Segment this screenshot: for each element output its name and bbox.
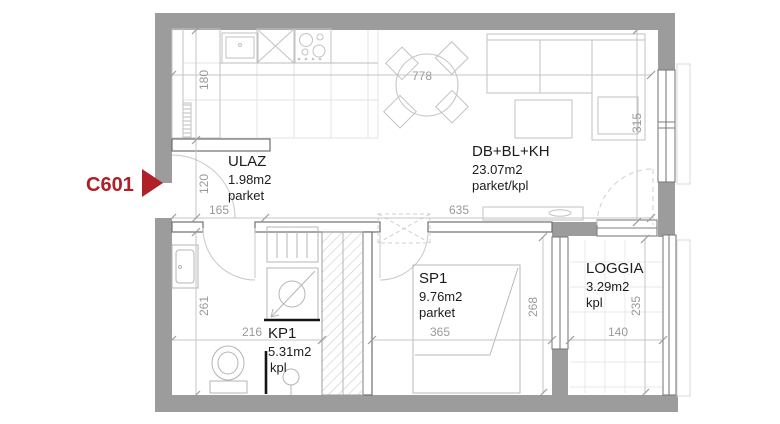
living-dining	[384, 34, 653, 225]
unit-marker[interactable]: C601	[86, 169, 163, 197]
room-bedroom-floor: parket	[419, 305, 456, 320]
unit-code-label[interactable]: C601	[86, 174, 134, 196]
corner-cabinet	[257, 29, 294, 63]
wall-loggia-left-lower	[552, 349, 568, 395]
dim-entry-depth: 120	[197, 174, 211, 194]
partition-living-bedroom	[428, 222, 552, 232]
room-loggia-name: LOGGIA	[586, 260, 644, 277]
dim-loggia-width: 140	[608, 325, 628, 339]
room-loggia-area: 3.29m2	[586, 279, 629, 294]
dim-living-total-width: 778	[412, 69, 432, 83]
kitchen-sink	[222, 33, 258, 63]
kitchen-stub-wall	[172, 139, 270, 151]
room-bath-floor: kpl	[270, 360, 287, 375]
wall-bottom	[155, 395, 678, 412]
room-label-living: DB+BL+KH 23.07m2 parket/kpl	[472, 143, 550, 193]
stove	[295, 29, 331, 63]
room-bedroom-area: 9.76m2	[419, 289, 462, 304]
room-living-floor: parket/kpl	[472, 178, 528, 193]
exterior-sills	[677, 64, 690, 396]
room-bath-name: KP1	[268, 325, 296, 342]
wall-left-lower	[155, 218, 172, 412]
wall-top	[155, 13, 675, 30]
floorplan-canvas: 180 120 165 635 778 315 261 216 365 268 …	[0, 0, 780, 424]
toilet	[210, 346, 247, 393]
coffee-table	[515, 100, 572, 138]
room-living-name: DB+BL+KH	[472, 143, 550, 160]
wall-loggia-left-upper	[552, 222, 568, 237]
floorplan-drawing: 180 120 165 635 778 315 261 216 365 268 …	[0, 0, 780, 424]
sofa	[487, 34, 645, 140]
room-ulaz-area: 1.98m2	[228, 172, 271, 187]
dim-living-width: 635	[449, 203, 469, 217]
shower	[267, 268, 318, 320]
loggia-railing	[663, 235, 676, 395]
sill-window	[677, 64, 690, 184]
bathroom	[172, 227, 320, 395]
dim-kitchen-depth: 180	[197, 70, 211, 90]
room-label-bedroom: SP1 9.76m2 parket	[419, 270, 462, 320]
room-living-area: 23.07m2	[472, 162, 523, 177]
room-bedroom-name: SP1	[419, 270, 447, 287]
bedroom-loggia-window	[552, 237, 568, 349]
room-label-ulaz: ULAZ 1.98m2 parket	[228, 153, 271, 203]
bath-door	[203, 228, 255, 280]
wall-right-mid	[658, 182, 675, 237]
balcony-door-dashed	[597, 169, 653, 225]
bath-sink	[172, 245, 198, 288]
installation-shaft	[322, 232, 363, 395]
dim-entry-width: 165	[209, 203, 229, 217]
wall-left-upper	[155, 13, 172, 183]
partition-bedroom-left	[363, 232, 372, 395]
dim-bedroom-width: 365	[430, 325, 450, 339]
living-window	[658, 70, 675, 182]
dim-bath-depth: 261	[197, 296, 211, 316]
room-bath-area: 5.31m2	[268, 344, 311, 359]
dim-bath-width: 216	[242, 325, 262, 339]
loggia-door-window	[597, 220, 657, 236]
dim-living-depth: 315	[630, 113, 644, 133]
room-loggia-floor: kpl	[586, 295, 603, 310]
radiator	[183, 103, 191, 138]
partition-hall-bath	[172, 222, 203, 232]
dim-bedroom-depth: 268	[526, 297, 540, 317]
room-ulaz-name: ULAZ	[228, 153, 266, 170]
sill-loggia	[677, 240, 690, 396]
room-label-bath: KP1 5.31m2 kpl	[268, 325, 311, 375]
dimension-lines	[172, 30, 663, 395]
room-ulaz-floor: parket	[228, 188, 265, 203]
dim-loggia-depth: 235	[629, 296, 643, 316]
dining-table	[384, 42, 469, 128]
wall-right-upper	[658, 28, 675, 70]
